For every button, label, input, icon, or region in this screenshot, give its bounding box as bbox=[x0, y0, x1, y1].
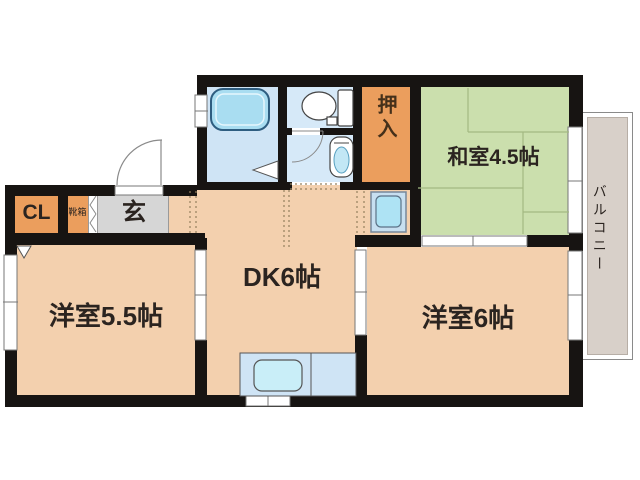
wall-segment bbox=[569, 75, 583, 127]
wall-segment bbox=[320, 128, 353, 135]
room-bath bbox=[207, 87, 278, 182]
wall-segment bbox=[278, 87, 287, 182]
wall-segment bbox=[197, 75, 583, 87]
room-washroom bbox=[287, 135, 353, 182]
label-entrance: 玄 bbox=[110, 200, 158, 225]
room-toilet bbox=[287, 87, 353, 128]
wall-segment bbox=[197, 87, 207, 95]
wall-segment bbox=[197, 182, 292, 190]
wall-segment bbox=[569, 247, 583, 251]
label-japanese-room: 和室4.5帖 bbox=[418, 147, 569, 169]
wall-segment bbox=[195, 340, 207, 400]
wall-segment bbox=[287, 128, 292, 135]
label-balcony: バルコニー bbox=[592, 184, 607, 274]
label-dining-kitchen: DK6帖 bbox=[197, 264, 367, 291]
floorplan: CL 靴箱 玄 押入 和室4.5帖 DK6帖 洋室5.5帖 洋室6帖 バルコニー bbox=[0, 0, 640, 480]
label-western-room-small: 洋室5.5帖 bbox=[17, 303, 195, 330]
wall-segment bbox=[5, 185, 15, 245]
label-oshiire: 押入 bbox=[374, 94, 395, 142]
wall-segment bbox=[355, 335, 367, 397]
wall-segment bbox=[353, 87, 362, 182]
wall-segment bbox=[5, 350, 17, 407]
wall-segment bbox=[340, 182, 421, 190]
label-cl: CL bbox=[15, 202, 58, 224]
wall-segment bbox=[163, 185, 197, 196]
wall-segment bbox=[355, 235, 421, 247]
wall-segment bbox=[195, 238, 207, 250]
label-shoe-box: 靴箱 bbox=[62, 208, 93, 217]
label-western-room-large: 洋室6帖 bbox=[367, 305, 569, 332]
wall-segment bbox=[5, 233, 205, 245]
wall-segment bbox=[197, 127, 207, 182]
wall-segment bbox=[8, 395, 583, 407]
entry-door-icon bbox=[117, 140, 162, 185]
